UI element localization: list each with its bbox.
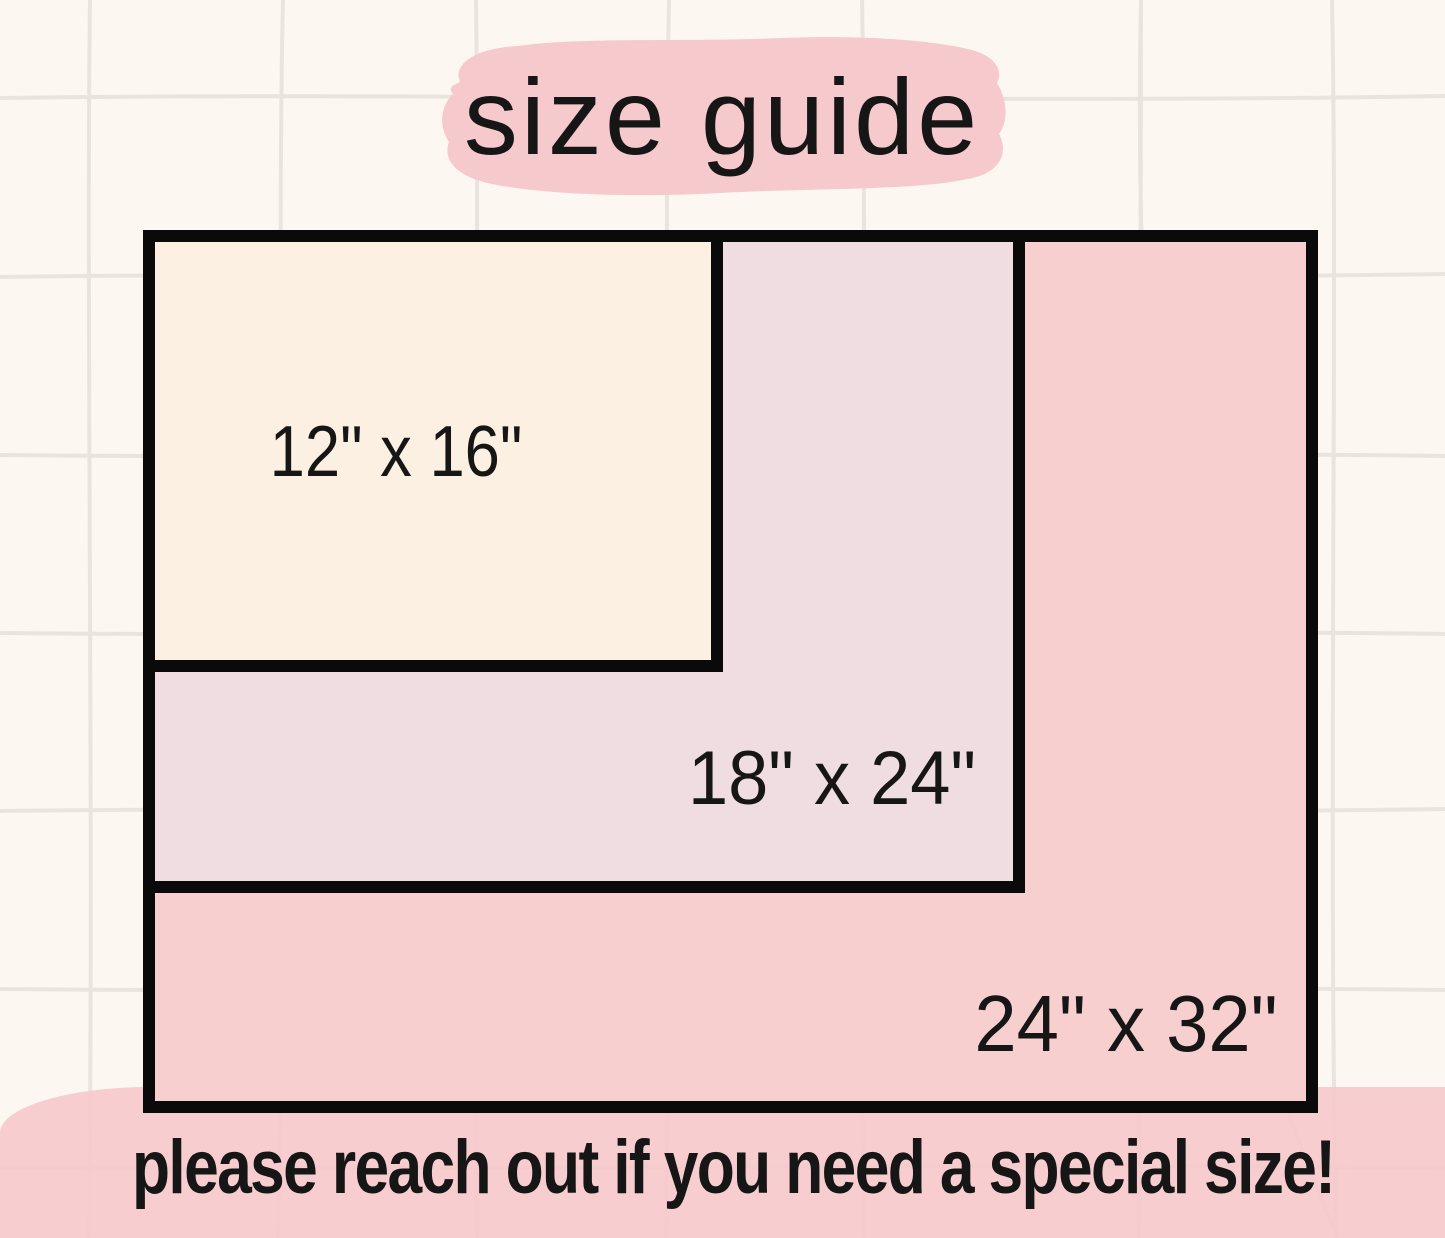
size-label-12x16: 12" x 16" [270, 416, 523, 488]
footer-message: please reach out if you need a special s… [132, 1124, 1334, 1211]
page-title: size guide [464, 63, 980, 171]
size-label-24x32: 24" x 32" [974, 984, 1277, 1064]
size-label-18x24: 18" x 24" [688, 741, 976, 817]
size-guide-graphic: 12" x 16" 18" x 24" 24" x 32" size guide… [0, 0, 1445, 1238]
footer-message-row: please reach out if you need a special s… [0, 1124, 1445, 1211]
